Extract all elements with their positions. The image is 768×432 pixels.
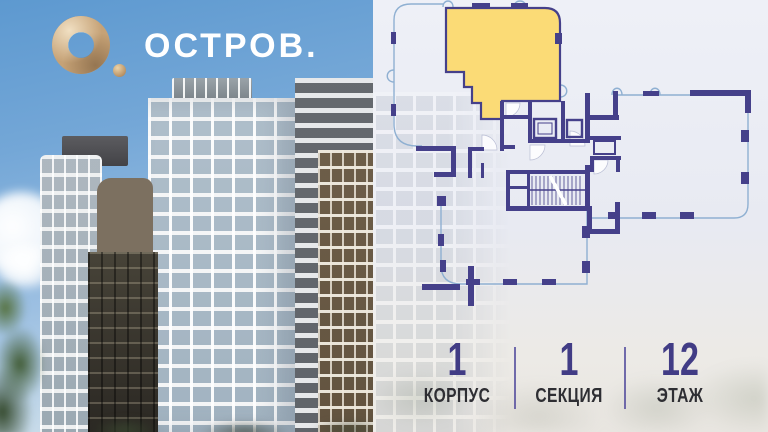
tower-main [148, 98, 298, 432]
stat-etazh-label: ЭТАЖ [641, 385, 719, 408]
gold-dot-icon [113, 64, 126, 77]
stats-divider [514, 347, 516, 409]
stat-korpus: 1 КОРПУС [407, 336, 507, 408]
tower-dark-glass [88, 252, 158, 432]
floor-plan [384, 0, 768, 310]
trees [0, 276, 46, 432]
building-photo-panel: ОСТРОВ. [0, 0, 373, 432]
staircase-icon [530, 176, 585, 205]
brand-name: ОСТРОВ. [144, 17, 319, 75]
stat-sektsiya-label: СЕКЦИЯ [530, 385, 608, 408]
stat-korpus-label: КОРПУС [418, 385, 496, 408]
listing-card: ОСТРОВ. [0, 0, 768, 432]
brand-logo[interactable]: ОСТРОВ. [52, 16, 319, 76]
stats-divider [624, 347, 626, 409]
floor-plan-panel: 1 КОРПУС 1 СЕКЦИЯ 12 ЭТАЖ [373, 0, 768, 432]
stat-sektsiya-value: 1 [532, 336, 606, 382]
unit-stats: 1 КОРПУС 1 СЕКЦИЯ 12 ЭТАЖ [373, 336, 768, 416]
stat-etazh: 12 ЭТАЖ [630, 336, 730, 408]
stat-sektsiya: 1 СЕКЦИЯ [519, 336, 619, 408]
stat-korpus-value: 1 [420, 336, 494, 382]
bushes [80, 412, 373, 432]
stat-etazh-value: 12 [643, 336, 717, 382]
tower-right-front [318, 150, 373, 432]
brand-logo-icon [52, 16, 128, 76]
gold-ring-icon [52, 16, 110, 74]
